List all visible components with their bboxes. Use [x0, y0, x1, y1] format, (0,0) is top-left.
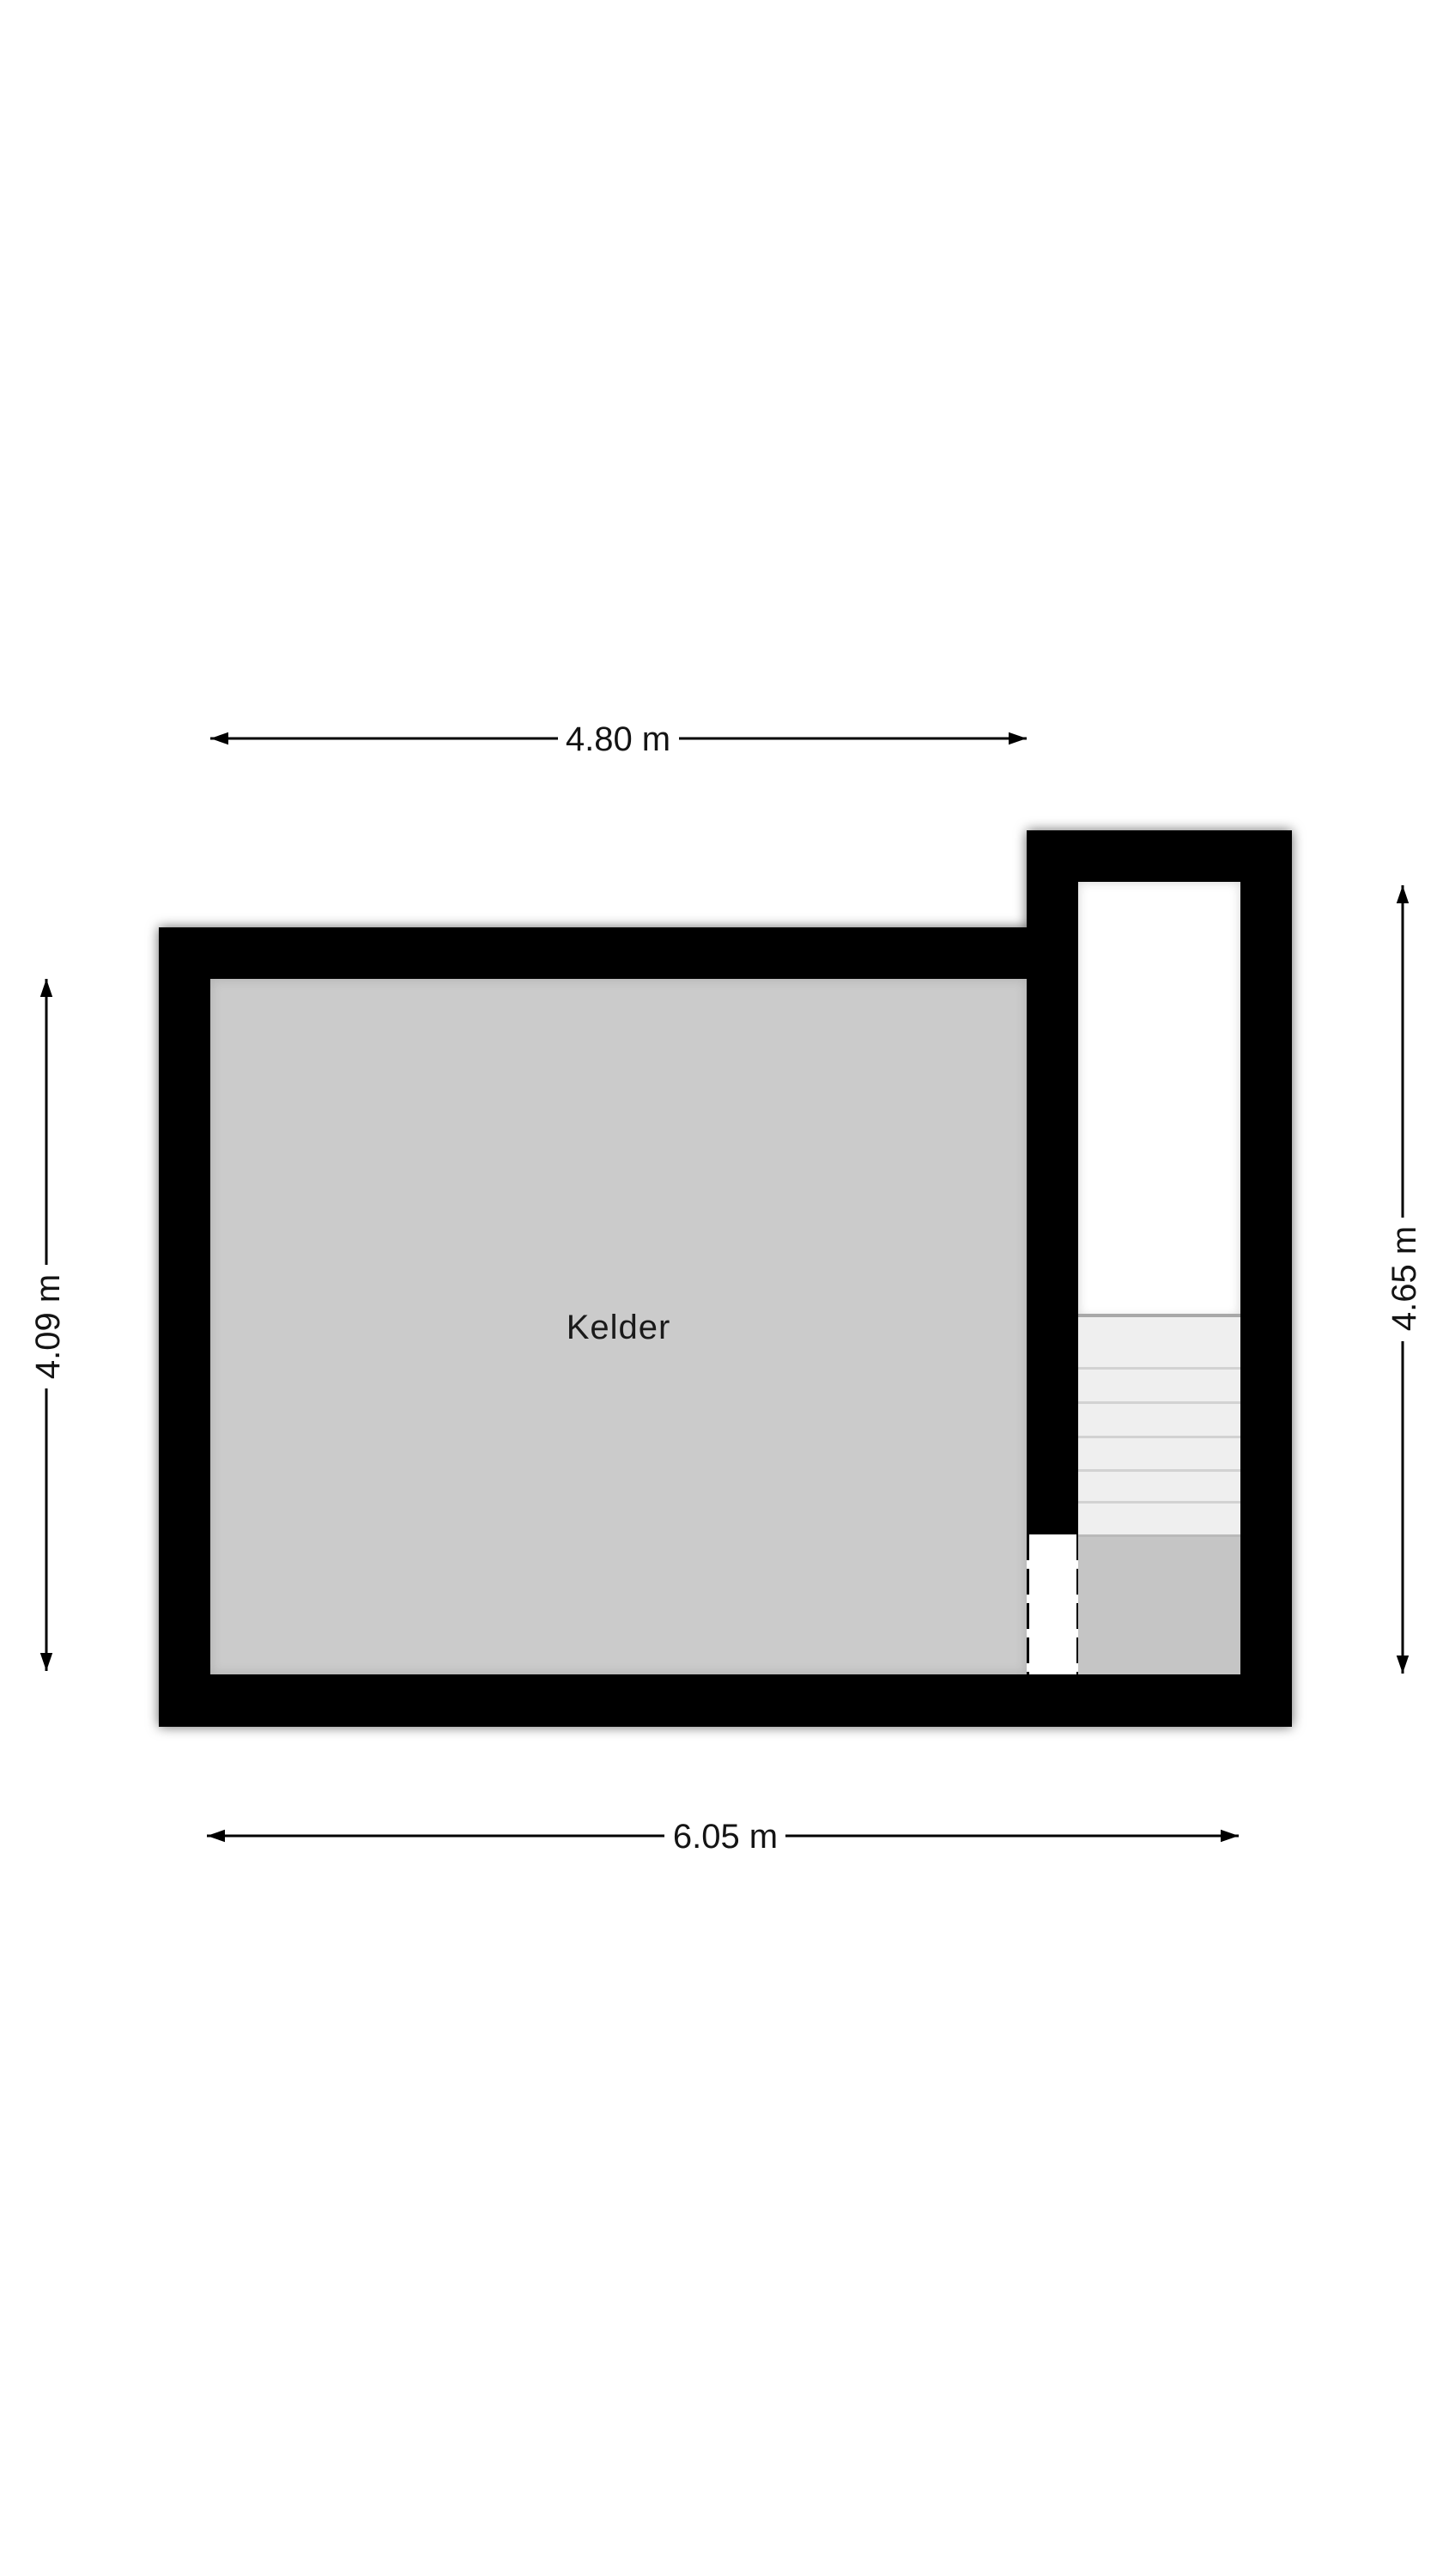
- svg-text:4.65 m: 4.65 m: [1385, 1226, 1423, 1331]
- svg-text:6.05 m: 6.05 m: [673, 1818, 778, 1856]
- svg-text:4.09 m: 4.09 m: [29, 1274, 67, 1379]
- svg-text:4.80 m: 4.80 m: [566, 720, 670, 758]
